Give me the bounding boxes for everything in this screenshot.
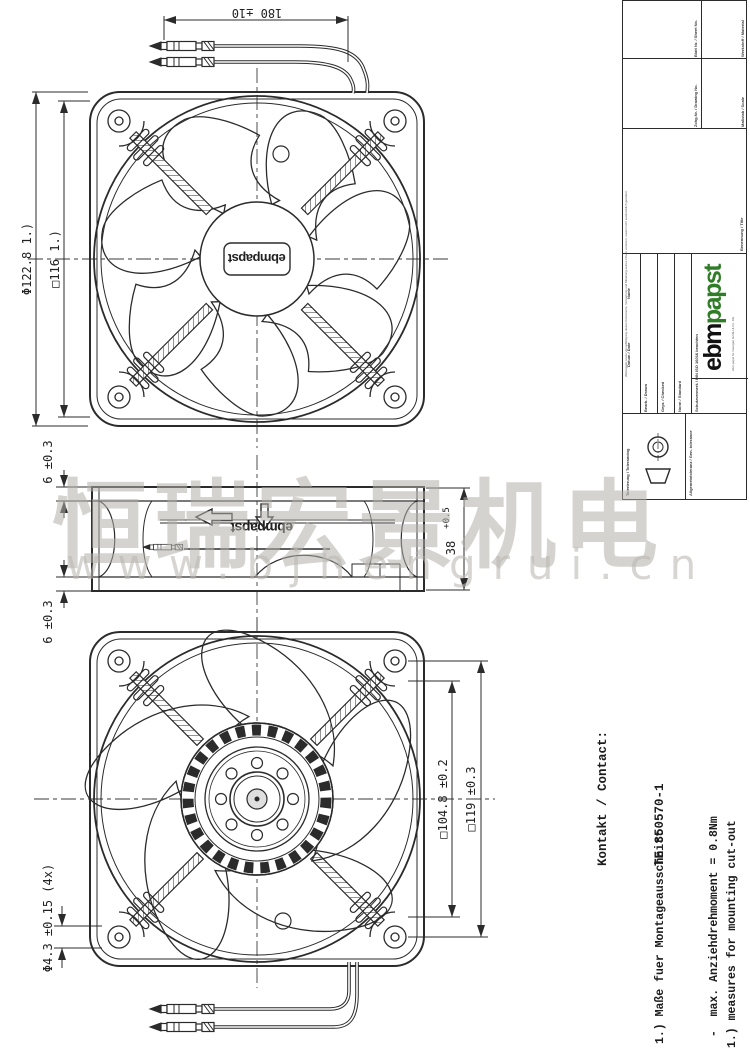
dim-depth-value: 38 [444, 541, 458, 555]
lead-wires-bottom [214, 962, 357, 1027]
dim-hole-diameter: Φ4.3 ±0.15 (4x) [41, 864, 55, 972]
label-tolerancing: Tolerierung / Tolerancing [625, 449, 630, 496]
title-block: Weitergabe sowie Vervielfältigung dieses… [622, 0, 747, 500]
label-drawing-no: Zchg.Nr. / Drawing No. [693, 84, 698, 127]
projection-symbol [645, 429, 671, 485]
label-date: Datum / Date [626, 343, 631, 367]
dim-wire-length-lines [164, 16, 348, 62]
note-german: 1.) Maße fuer Montageausschnitt - max. A… [616, 648, 672, 1044]
label-norm: Norm / Standard [677, 381, 682, 412]
contact-block: Kontakt / Contact: TE 350570-1 [556, 648, 598, 866]
dim-flange-lines [56, 470, 94, 608]
label-title: Benennung / Title [739, 218, 744, 251]
front-hub-logo: ebmpapst [227, 251, 286, 266]
title-block-logo: ebmpapst [699, 265, 728, 371]
rear-view [34, 617, 495, 1032]
company-name: ebm-papst St. Georgen GmbH & Co. KG [731, 317, 735, 371]
note-english: 1.) measures for mounting cut-out - max.… [688, 644, 744, 1048]
dim-wire-length: 180 ±10 [232, 6, 283, 20]
dim-hole-lines [54, 906, 102, 968]
side-view [56, 455, 470, 640]
dim-depth-tolerance: +0.5 [442, 507, 452, 529]
label-checked: Gepr. / Checked [660, 382, 665, 412]
dim-cutout-104: □104.8 ±0.2 [436, 759, 450, 838]
dim-flange-bottom: 6 ±0.3 [41, 600, 55, 643]
label-general-tolerance: Allgemeintoleranz / Gen. tolerance [688, 418, 693, 496]
note-english-line1: 1.) measures for mounting cut-out [724, 644, 742, 1048]
label-drawn: Bearb. / Drawn [643, 384, 648, 412]
logo-ebm: ebm [699, 324, 727, 371]
dim-outer-diameter: Φ122.8 1.) [20, 223, 34, 295]
label-scale: Maßstab / Scale [740, 97, 745, 127]
title-block-notice: Weitergabe sowie Vervielfältigung dieses… [624, 137, 628, 377]
contact-line1: Kontakt / Contact: [594, 648, 613, 866]
logo-papst: papst [699, 265, 727, 324]
dim-square-116: □116 1.) [48, 230, 62, 288]
label-sheet: Blatt Nr. / Sheet No. [693, 20, 698, 57]
dim-flange-top: 6 ±0.3 [41, 440, 55, 483]
label-protection: Schutzvermerk / DIN ISO 16016 beachten [694, 381, 699, 412]
dim-frame-119: □119 ±0.3 [464, 766, 478, 831]
dim-depth-lines [426, 488, 470, 590]
fan-technical-drawing: 180 ±10 Φ122.8 1.) □116 1.) ebmpapst ebm… [0, 0, 750, 1049]
lead-wires-top [214, 46, 368, 93]
note-german-line1: 1.) Maße fuer Montageausschnitt [652, 648, 670, 1044]
front-view [28, 16, 452, 448]
side-view-logo: ebmpapst [230, 520, 293, 536]
label-name: Name [626, 288, 631, 299]
rear-hub [181, 723, 333, 875]
label-material: Werkstoff / Material [740, 20, 745, 57]
